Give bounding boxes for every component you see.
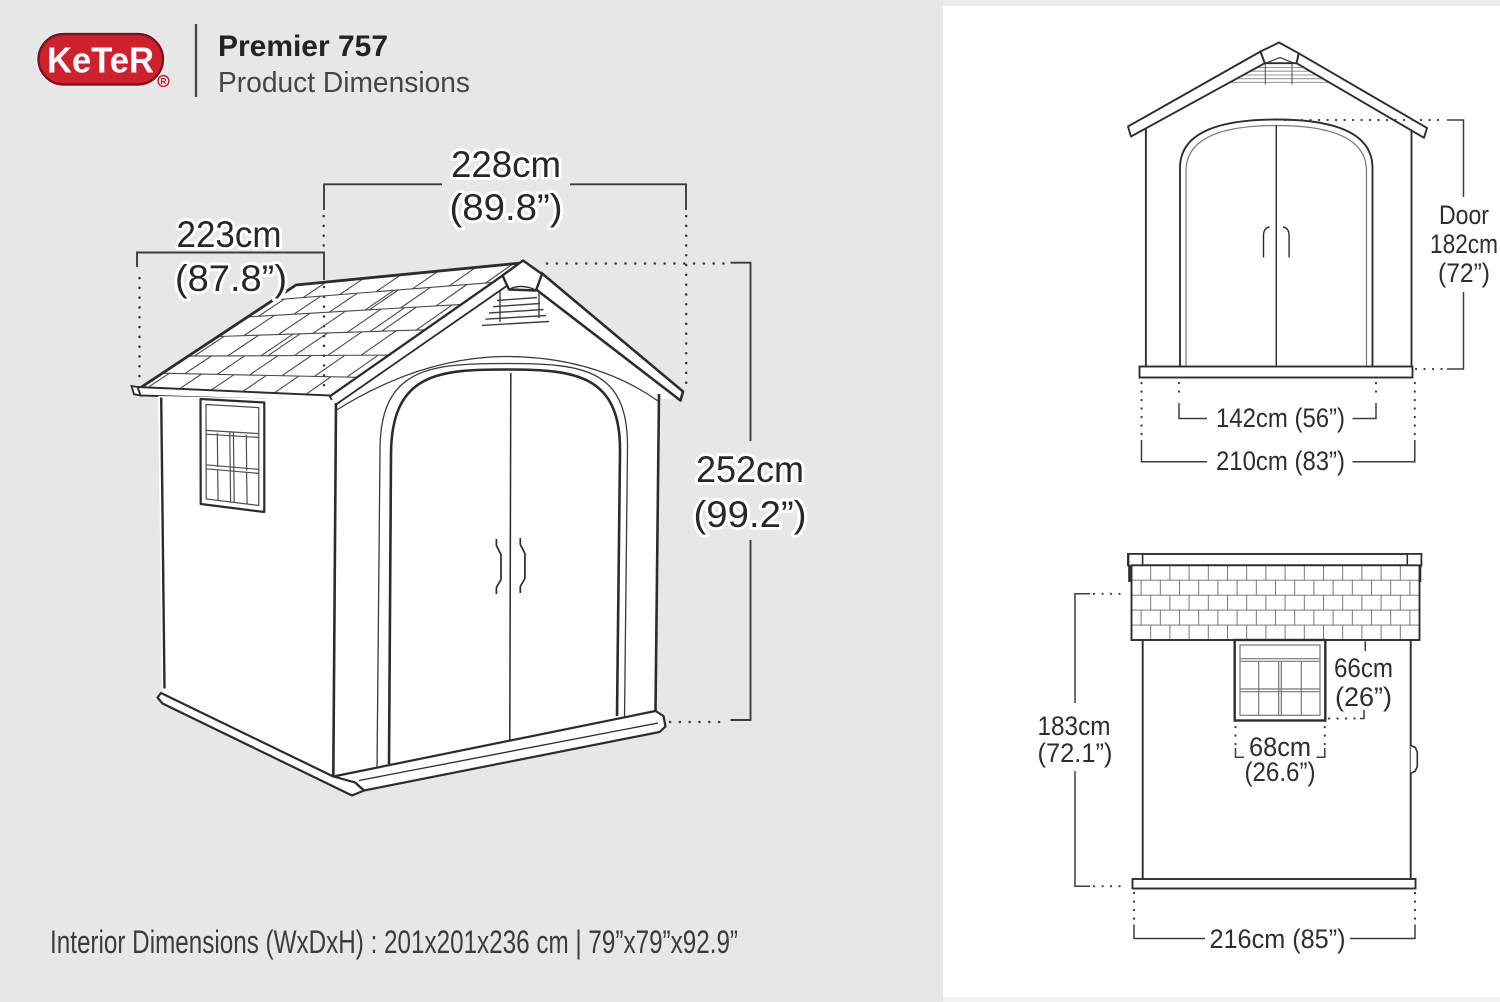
svg-text:Product Dimensions: Product Dimensions: [218, 67, 470, 99]
svg-text:(26”): (26”): [1335, 682, 1392, 712]
svg-text:228cm: 228cm: [451, 144, 561, 185]
svg-text:KeTeR: KeTeR: [47, 40, 154, 81]
svg-text:(89.8”): (89.8”): [450, 187, 563, 228]
svg-text:(72”): (72”): [1438, 258, 1490, 288]
svg-text:223cm: 223cm: [177, 214, 282, 255]
svg-text:252cm: 252cm: [696, 449, 804, 490]
svg-text:210cm (83”): 210cm (83”): [1216, 446, 1345, 476]
svg-text:182cm: 182cm: [1430, 229, 1498, 259]
svg-text:(87.8”): (87.8”): [175, 258, 287, 299]
svg-text:66cm: 66cm: [1334, 653, 1393, 683]
svg-text:Interior Dimensions (WxDxH) :: Interior Dimensions (WxDxH) : 201x201x23…: [50, 924, 738, 960]
svg-text:216cm (85”): 216cm (85”): [1210, 924, 1346, 954]
svg-text:142cm (56”): 142cm (56”): [1216, 403, 1345, 433]
svg-text:Door: Door: [1439, 200, 1489, 230]
svg-text:Premier 757: Premier 757: [218, 30, 388, 63]
svg-text:183cm: 183cm: [1038, 711, 1111, 741]
svg-text:(99.2”): (99.2”): [694, 494, 807, 535]
svg-text:(72.1”): (72.1”): [1038, 738, 1113, 768]
svg-text:(26.6”): (26.6”): [1245, 757, 1316, 787]
svg-text:R: R: [160, 76, 166, 86]
